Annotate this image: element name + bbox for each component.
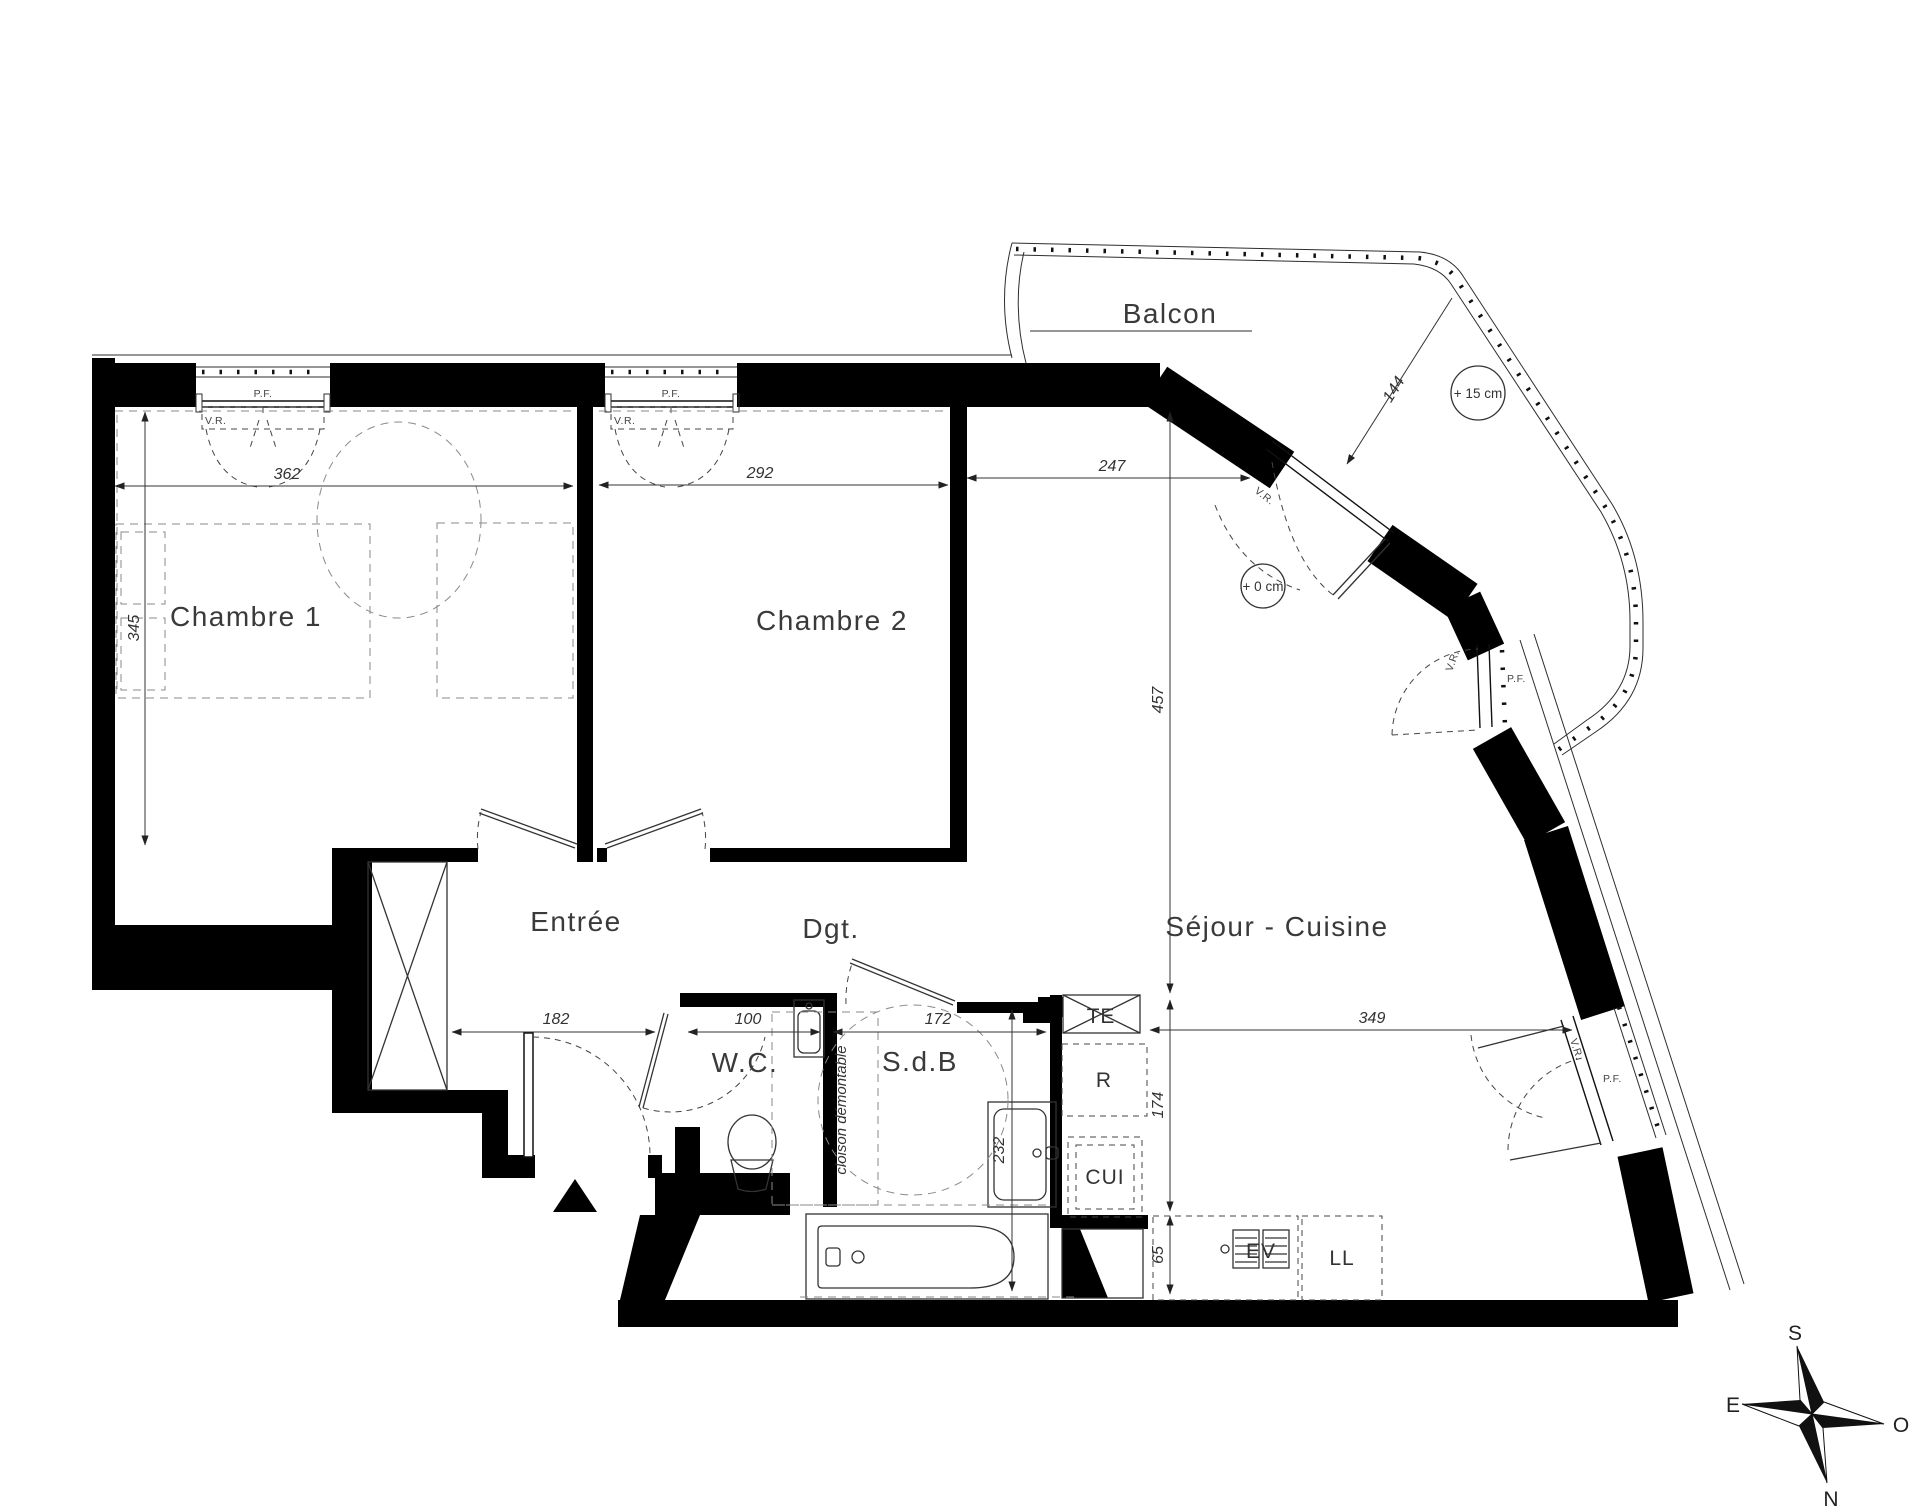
window-vr-label: V.R. [1444, 649, 1463, 673]
walls [92, 358, 1744, 1327]
compass-north-label: N [1823, 1488, 1838, 1509]
dim-182: 182 [543, 1011, 570, 1028]
window-pf-label: P.F. [662, 388, 681, 400]
floor-plan-svg: P.F. V.R. P.F. V.R. V.R. P.F. [0, 0, 1920, 1509]
fridge-label: R [1096, 1069, 1112, 1092]
window-sejour-lower: P.F. V.R. [1471, 1005, 1666, 1160]
window-vr-label: V.R. [1252, 485, 1276, 508]
floor-plan-page: P.F. V.R. P.F. V.R. V.R. P.F. [0, 0, 1920, 1509]
compass-west-label: O [1893, 1414, 1909, 1437]
room-label-sdb: S.d.B [882, 1046, 958, 1077]
dim-174: 174 [1150, 1092, 1167, 1119]
bed [115, 411, 948, 698]
compass-east-label: E [1726, 1394, 1740, 1417]
room-label-entree: Entrée [530, 906, 622, 937]
kitchen-fridge-box: R [1062, 1044, 1147, 1116]
door-chambre-2 [605, 809, 706, 849]
ev-label: EV [1246, 1240, 1276, 1263]
plus0-label: + 0 cm [1243, 579, 1284, 594]
dim-232: 232 [991, 1137, 1008, 1165]
window-vr-label: V.R. [614, 415, 635, 427]
balcony-railing [92, 243, 1643, 755]
window-vr-label: V.R. [205, 415, 226, 427]
dim-100: 100 [735, 1011, 762, 1028]
kitchen-te-box: TE [1063, 995, 1140, 1033]
plus15-label: + 15 cm [1454, 386, 1502, 401]
wc-sink [794, 1000, 824, 1057]
room-label-balcon: Balcon [1123, 298, 1218, 329]
kitchen-ll-box: LL [1302, 1216, 1382, 1300]
dim-65: 65 [1150, 1246, 1167, 1264]
door-entrance [524, 1033, 650, 1157]
dim-345: 345 [126, 615, 143, 642]
level-marker-plus15: + 15 cm [1451, 366, 1505, 420]
window-chambre-1: P.F. V.R. [196, 367, 330, 487]
window-pf-label: P.F. [254, 388, 273, 400]
room-label-sejour: Séjour - Cuisine [1165, 911, 1388, 942]
dim-349: 349 [1359, 1010, 1386, 1027]
room-label-chambre-2: Chambre 2 [756, 605, 908, 636]
dim-172: 172 [925, 1011, 952, 1028]
window-chambre-2: P.F. V.R. [605, 367, 739, 487]
dim-247: 247 [1098, 458, 1127, 475]
room-label-wc: W.C. [712, 1047, 779, 1078]
entry-arrow-icon [553, 1179, 597, 1212]
kitchen-sink-counter: EV [1153, 1216, 1298, 1300]
compass-rose: S O N E [1726, 1322, 1909, 1509]
dim-362: 362 [274, 466, 301, 483]
window-sejour-upper: P.F. V.R. [1392, 644, 1526, 735]
cloison-demontable-label: cloison démontable [833, 1045, 850, 1174]
dim-457: 457 [1150, 686, 1167, 714]
te-label: TE [1087, 1005, 1116, 1028]
door-sdb [846, 959, 955, 1005]
ll-label: LL [1329, 1247, 1354, 1270]
window-pf-label: P.F. [1603, 1073, 1622, 1085]
window-pf-label: P.F. [1507, 673, 1526, 685]
room-label-chambre-1: Chambre 1 [170, 601, 322, 632]
cui-label: CUI [1085, 1166, 1124, 1189]
dim-144: 144 [1380, 374, 1409, 406]
dim-292: 292 [746, 465, 774, 482]
room-label-dgt: Dgt. [802, 913, 859, 944]
kitchen-cui-box: CUI [1068, 1137, 1142, 1217]
closet-box [368, 862, 447, 1090]
compass-south-label: S [1788, 1322, 1802, 1345]
door-chambre-1 [477, 809, 577, 849]
